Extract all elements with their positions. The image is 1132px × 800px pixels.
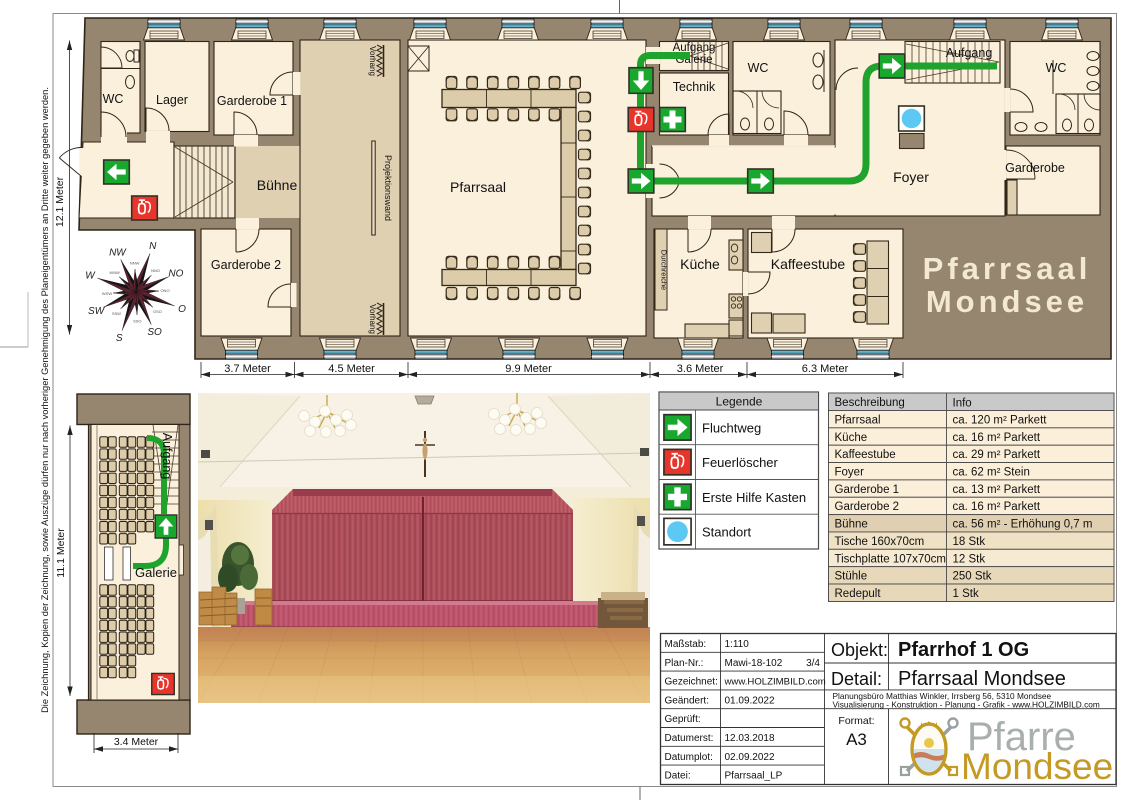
svg-text:18 Stk: 18 Stk: [953, 536, 986, 548]
svg-text:Pfarrsaal Mondsee: Pfarrsaal Mondsee: [898, 668, 1066, 690]
svg-text:Geprüft:: Geprüft:: [665, 714, 701, 725]
svg-text:NO: NO: [168, 269, 183, 280]
svg-text:Galerie: Galerie: [135, 565, 177, 580]
svg-text:Pfarrsaal: Pfarrsaal: [450, 179, 506, 195]
svg-text:S: S: [116, 333, 123, 344]
svg-text:NNW: NNW: [130, 261, 140, 266]
svg-text:Foyer: Foyer: [893, 169, 929, 185]
svg-text:Pfarrsaal: Pfarrsaal: [923, 251, 1092, 286]
svg-text:ca. 13 m² Parkett: ca. 13 m² Parkett: [953, 484, 1041, 496]
svg-text:Projektionswand: Projektionswand: [383, 155, 393, 221]
svg-text:ca. 120 m² Parkett: ca. 120 m² Parkett: [953, 415, 1048, 427]
svg-text:A3: A3: [846, 730, 867, 749]
svg-text:Küche: Küche: [835, 432, 868, 444]
svg-text:SSW: SSW: [112, 311, 121, 316]
svg-text:Kaffeestube: Kaffeestube: [835, 449, 896, 461]
svg-text:Bühne: Bühne: [257, 177, 298, 193]
svg-text:Pfarrsaal_LP: Pfarrsaal_LP: [725, 771, 783, 782]
svg-text:NW: NW: [109, 247, 127, 258]
svg-text:Mondsee: Mondsee: [961, 746, 1113, 787]
svg-text:Garderobe: Garderobe: [1005, 161, 1065, 175]
svg-text:Kaffeestube: Kaffeestube: [771, 256, 846, 272]
svg-text:Fluchtweg: Fluchtweg: [702, 420, 761, 435]
svg-text:3/4: 3/4: [806, 658, 820, 669]
svg-text:ca. 16 m² Parkett: ca. 16 m² Parkett: [953, 432, 1041, 444]
svg-text:Vorhang: Vorhang: [368, 46, 377, 76]
svg-text:Datumplot:: Datumplot:: [665, 752, 713, 763]
svg-text:4.5 Meter: 4.5 Meter: [328, 363, 375, 375]
svg-text:Detail:: Detail:: [831, 669, 882, 689]
svg-text:www.HOLZIMBILD.com: www.HOLZIMBILD.com: [724, 677, 826, 688]
svg-text:W: W: [85, 270, 96, 281]
svg-text:Feuerlöscher: Feuerlöscher: [702, 455, 779, 470]
svg-text:ca. 62 m² Stein: ca. 62 m² Stein: [953, 467, 1030, 479]
svg-text:Durchreiche: Durchreiche: [660, 250, 669, 290]
svg-text:Objekt:: Objekt:: [831, 640, 888, 660]
svg-text:OSO: OSO: [153, 309, 162, 314]
svg-text:Redepult: Redepult: [835, 588, 882, 600]
svg-text:Garderobe 2: Garderobe 2: [835, 501, 900, 513]
svg-text:Info: Info: [953, 398, 972, 410]
svg-text:01.09.2022: 01.09.2022: [725, 695, 775, 706]
svg-text:Pfarrsaal: Pfarrsaal: [835, 415, 881, 427]
svg-text:Datumerst:: Datumerst:: [665, 733, 714, 744]
svg-text:WNW: WNW: [109, 270, 120, 275]
svg-text:Foyer: Foyer: [835, 467, 865, 479]
svg-text:Die Zeichnung, Kopien der Zeic: Die Zeichnung, Kopien der Zeichnung, sow…: [40, 87, 50, 713]
svg-text:ONO: ONO: [160, 288, 169, 293]
svg-text:ca. 56 m² - Erhöhung 0,7 m: ca. 56 m² - Erhöhung 0,7 m: [953, 519, 1093, 531]
svg-text:WC: WC: [1046, 61, 1067, 75]
svg-text:WC: WC: [748, 61, 769, 75]
svg-text:Legende: Legende: [716, 395, 763, 409]
svg-text:SW: SW: [88, 306, 106, 317]
svg-text:Küche: Küche: [680, 256, 720, 272]
svg-text:Geändert:: Geändert:: [665, 695, 709, 706]
svg-text:ca. 16 m² Parkett: ca. 16 m² Parkett: [953, 501, 1041, 513]
svg-text:3.7 Meter: 3.7 Meter: [224, 363, 271, 375]
svg-text:WC: WC: [103, 92, 124, 106]
svg-text:Format:: Format:: [838, 715, 874, 727]
svg-text:12.03.2018: 12.03.2018: [725, 733, 775, 744]
svg-text:250 Stk: 250 Stk: [953, 571, 992, 583]
svg-text:Technik: Technik: [673, 80, 716, 94]
svg-text:SSO: SSO: [133, 319, 141, 324]
svg-text:Visualisierung - Konstruktion: Visualisierung - Konstruktion - Planung …: [833, 700, 1100, 710]
svg-text:Stühle: Stühle: [835, 571, 868, 583]
svg-text:1:110: 1:110: [725, 639, 750, 650]
svg-text:11.1 Meter: 11.1 Meter: [55, 528, 67, 578]
svg-text:Garderobe 1: Garderobe 1: [217, 94, 287, 108]
svg-text:Standort: Standort: [702, 525, 752, 540]
svg-text:ca. 29 m² Parkett: ca. 29 m² Parkett: [953, 449, 1041, 461]
svg-text:Pfarrhof 1 OG: Pfarrhof 1 OG: [898, 639, 1029, 661]
svg-text:3.6 Meter: 3.6 Meter: [677, 363, 724, 375]
svg-text:02.09.2022: 02.09.2022: [725, 752, 775, 763]
svg-text:Bühne: Bühne: [835, 519, 868, 531]
svg-text:Plan-Nr.:: Plan-Nr.:: [665, 658, 704, 669]
svg-text:SO: SO: [147, 327, 162, 338]
svg-text:Garderobe 2: Garderobe 2: [211, 258, 281, 272]
svg-text:Aufgang: Aufgang: [946, 46, 993, 60]
svg-text:1 Stk: 1 Stk: [953, 588, 979, 600]
svg-text:Tische 160x70cm: Tische 160x70cm: [835, 536, 925, 548]
svg-text:Tischplatte 107x70cm: Tischplatte 107x70cm: [835, 553, 946, 565]
svg-text:Mondsee: Mondsee: [926, 284, 1088, 319]
svg-text:O: O: [178, 304, 186, 315]
svg-text:Vorhang: Vorhang: [368, 304, 377, 334]
svg-text:Mawi-18-102: Mawi-18-102: [725, 658, 783, 669]
svg-text:Garderobe 1: Garderobe 1: [835, 484, 900, 496]
svg-text:9.9 Meter: 9.9 Meter: [505, 363, 552, 375]
svg-text:12 Stk: 12 Stk: [953, 553, 986, 565]
svg-text:Lager: Lager: [156, 93, 188, 107]
svg-text:N: N: [149, 241, 157, 252]
svg-text:12.1 Meter: 12.1 Meter: [54, 176, 66, 227]
svg-text:Beschreibung: Beschreibung: [835, 397, 905, 409]
svg-text:Datei:: Datei:: [665, 771, 691, 782]
svg-text:Gezeichnet:: Gezeichnet:: [665, 677, 718, 688]
svg-text:6.3 Meter: 6.3 Meter: [802, 363, 849, 375]
svg-text:Aufgang: Aufgang: [160, 433, 174, 480]
svg-text:Erste Hilfe Kasten: Erste Hilfe Kasten: [702, 490, 806, 505]
svg-text:WSW: WSW: [102, 291, 112, 296]
svg-text:3.4 Meter: 3.4 Meter: [114, 736, 159, 748]
svg-text:Maßstab:: Maßstab:: [665, 639, 707, 650]
svg-text:NNO: NNO: [151, 268, 160, 273]
